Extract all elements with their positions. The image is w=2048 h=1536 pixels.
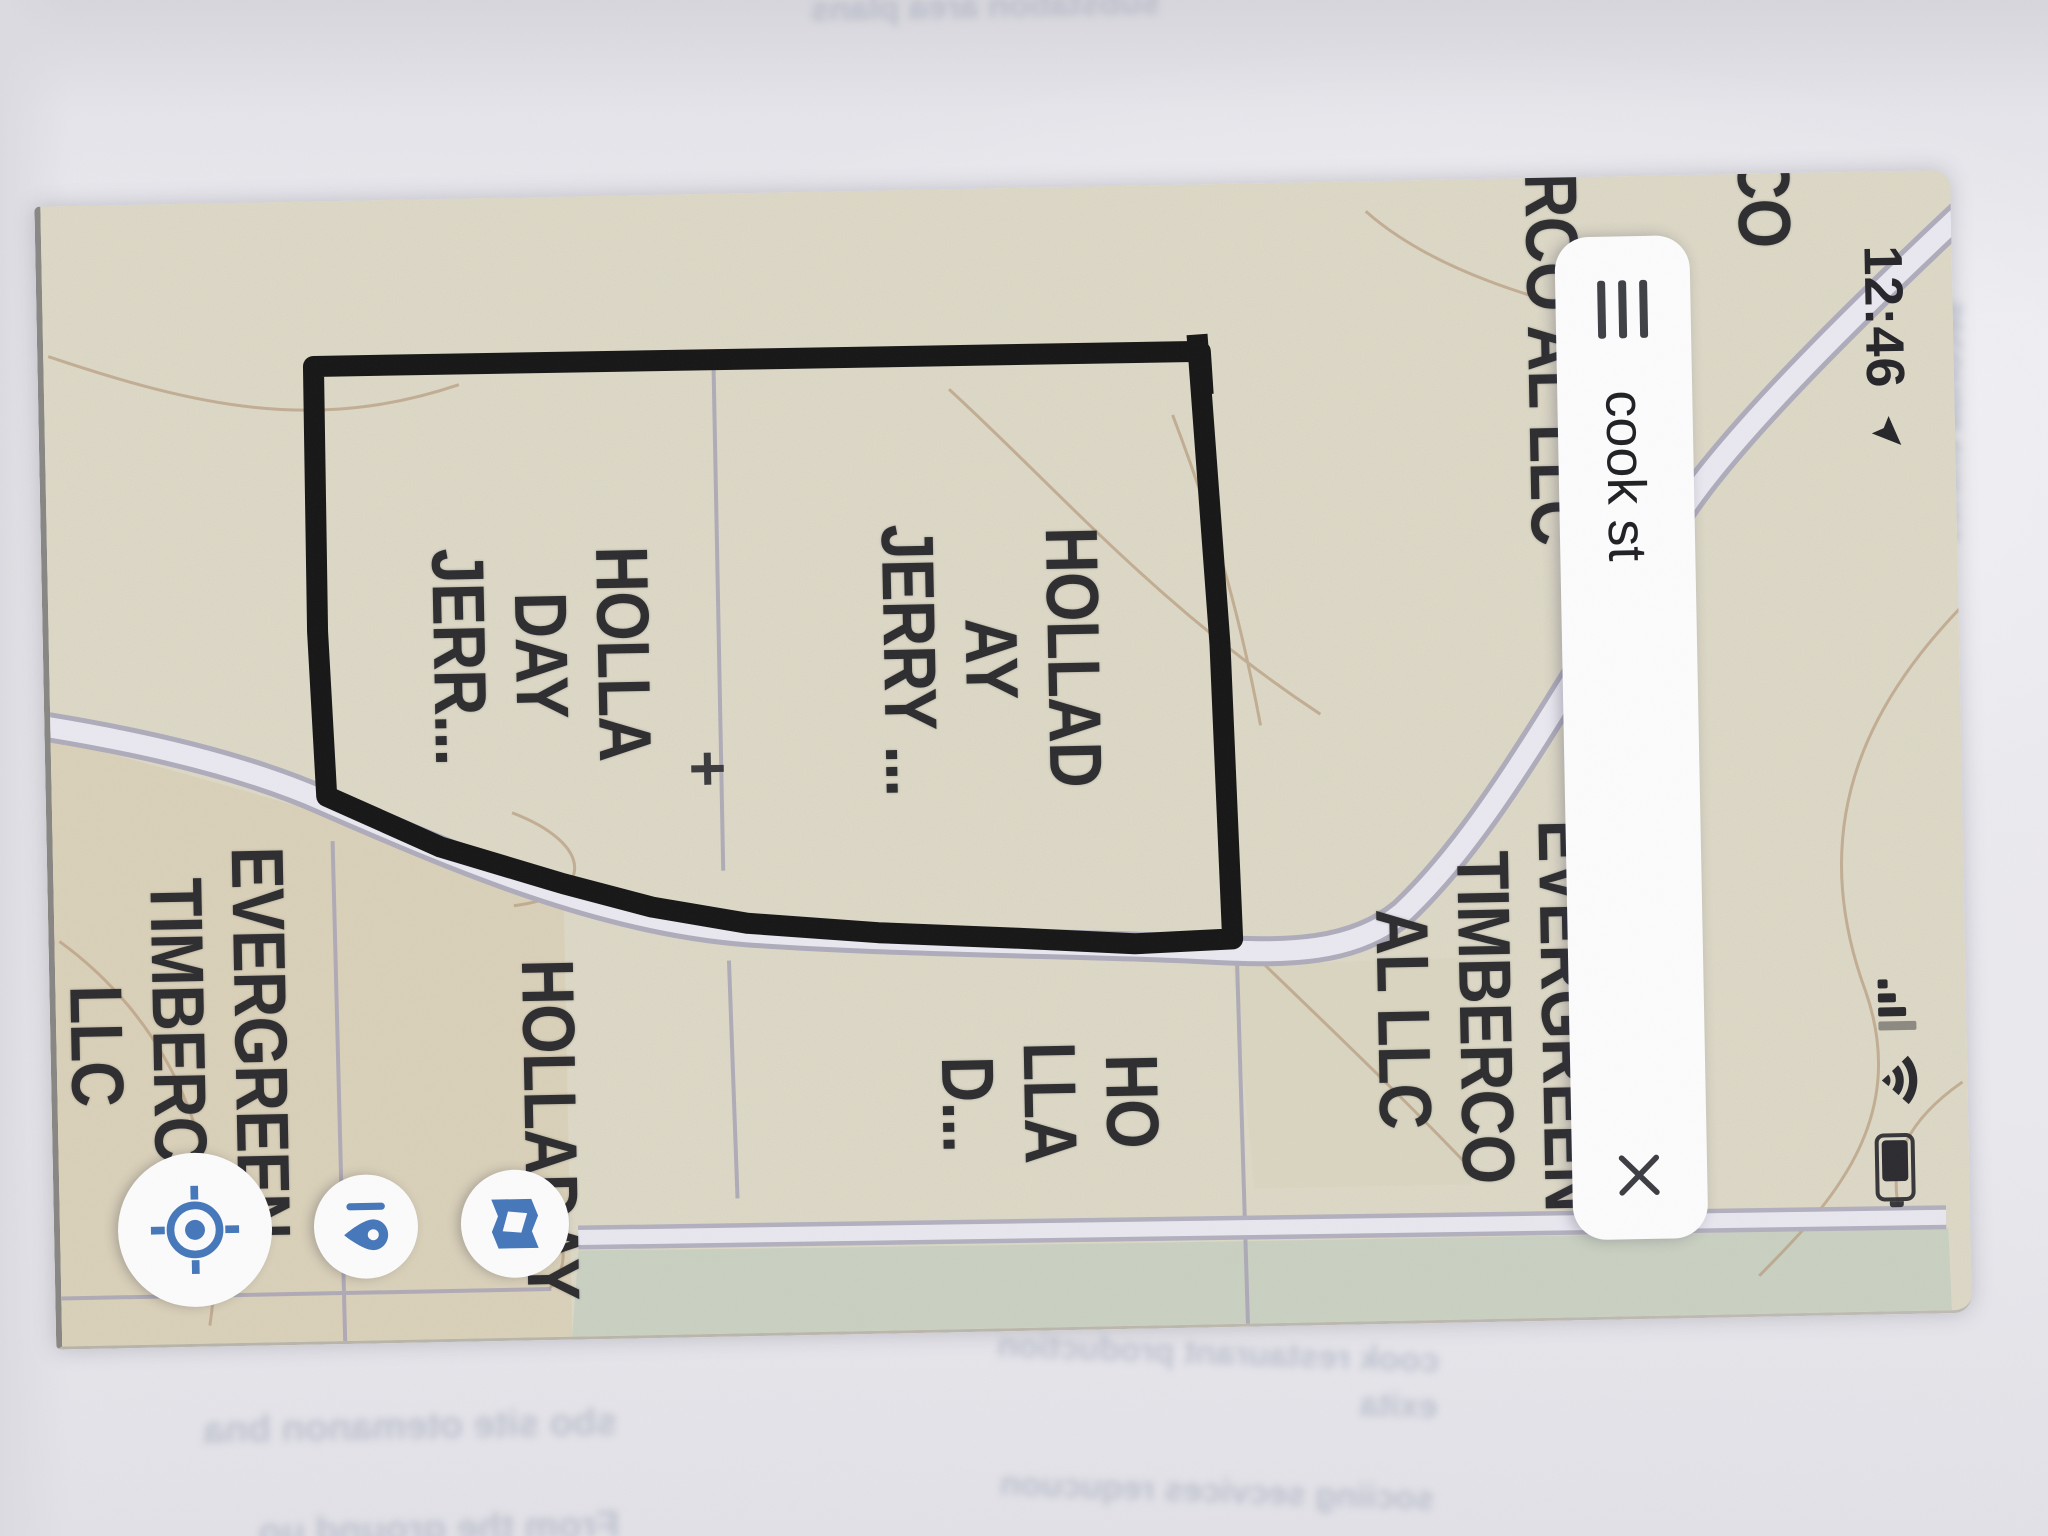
status-time: 12:46	[1851, 245, 1916, 389]
nav-arrow-icon	[1867, 411, 1906, 450]
signal-bars-icon	[1875, 977, 1920, 1034]
battery-icon	[1874, 1133, 1915, 1202]
photo-of-printed-screenshot: sbo site otemanon bna From the ground uo…	[0, 0, 2048, 1536]
bleed-text-block: sbo site otemanon bna From the ground uo…	[56, 1346, 624, 1536]
search-query-text[interactable]: cook st	[1594, 390, 1659, 562]
location-target-icon	[148, 1183, 242, 1277]
bleed-text-line: substation area plans	[640, 0, 1161, 37]
wifi-icon	[1877, 1053, 1922, 1108]
parcel-label: HO LLA D...	[924, 945, 1176, 1259]
map-pin-icon	[332, 1193, 399, 1260]
phone-screenshot: CO RCO AL LLC EVERGREEN TIMBERCO AL LLC …	[34, 170, 1972, 1350]
hamburger-menu-icon[interactable]	[1598, 280, 1649, 339]
close-icon[interactable]	[1613, 1149, 1666, 1202]
parcel-label: CO	[1722, 170, 1807, 326]
status-bar: 12:46	[1840, 170, 1972, 1312]
parcel-label: HOLLA DAY JERR...	[413, 412, 668, 898]
parcel-label: HOLLAD AY JERRY ...	[864, 415, 1119, 901]
search-bar[interactable]: cook st	[1554, 235, 1708, 1240]
center-plus-marker: +	[676, 749, 741, 788]
folded-map-icon	[483, 1192, 546, 1255]
parcel-label: HOLLADAY	[506, 958, 596, 1349]
